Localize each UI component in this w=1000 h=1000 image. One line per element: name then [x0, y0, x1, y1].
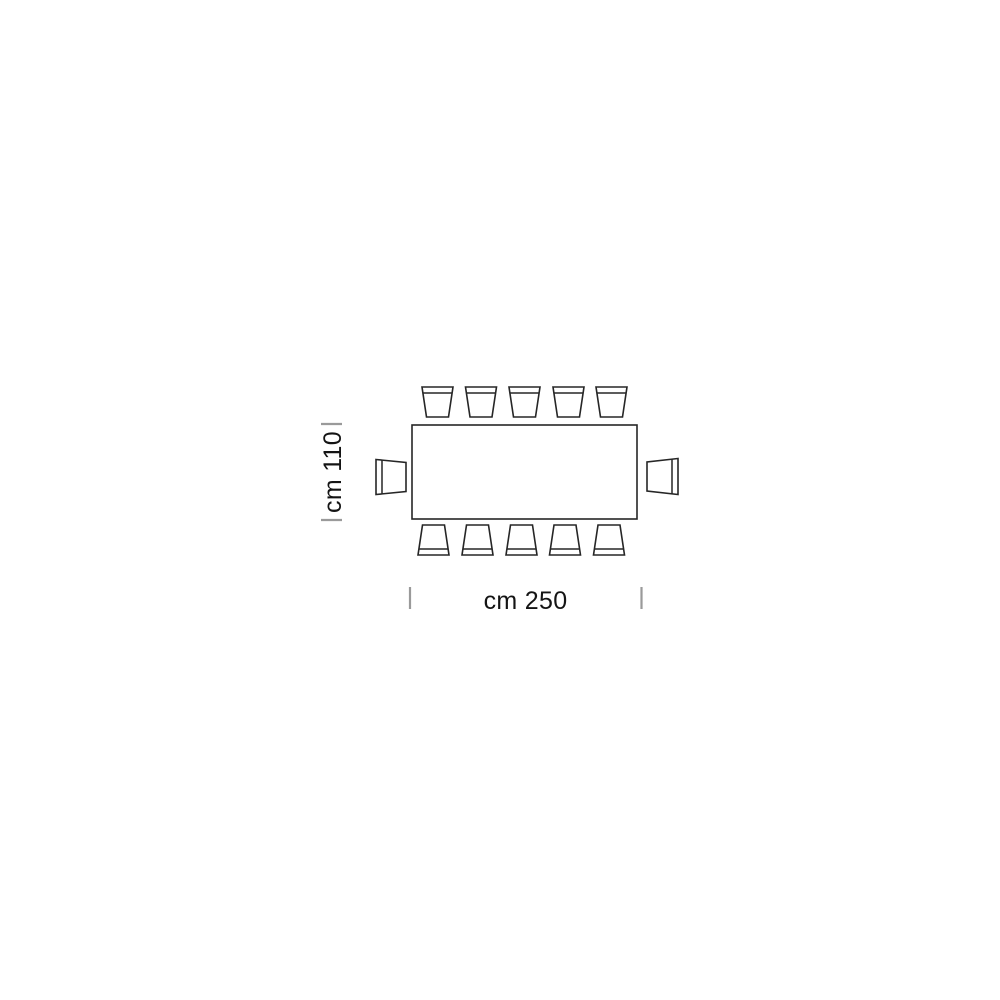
chair	[647, 459, 678, 495]
chair	[422, 387, 453, 417]
width-dimension: cm 250	[410, 587, 642, 615]
chair	[596, 387, 627, 417]
chair-right-end	[647, 459, 678, 495]
table-top	[412, 425, 637, 519]
plan-svg: cm 110 cm 250	[0, 0, 1000, 1000]
chair	[550, 525, 581, 555]
chair	[553, 387, 584, 417]
chair	[594, 525, 625, 555]
chair	[466, 387, 497, 417]
width-dimension-label: cm 250	[484, 587, 568, 615]
chairs-bottom-row	[418, 525, 625, 555]
chair-left-end	[376, 460, 406, 495]
height-dimension: cm 110	[319, 424, 347, 520]
table-group	[412, 425, 637, 519]
chair	[509, 387, 540, 417]
chairs-top-row	[422, 387, 627, 417]
chair	[418, 525, 449, 555]
height-dimension-label: cm 110	[319, 431, 347, 513]
furniture-dimension-diagram: cm 110 cm 250	[0, 0, 1000, 1000]
chair	[376, 460, 406, 495]
chair	[462, 525, 493, 555]
chair	[506, 525, 537, 555]
